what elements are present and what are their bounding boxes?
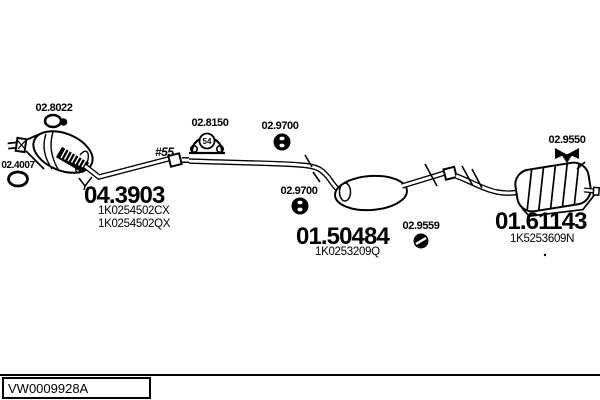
part-code-hanger-mid[interactable]: 02.9700 (276, 186, 322, 197)
centre-outlet-pipe-drawing (402, 164, 448, 186)
oem-ref-front-pipe-1: 1K0254502CX (98, 206, 170, 218)
middle-pipe-drawing (189, 155, 349, 195)
rubber-hanger-rear-icon (555, 148, 579, 163)
footer-divider (0, 374, 600, 376)
rubber-hanger-front-icon (274, 134, 291, 151)
stray-mark (544, 254, 546, 256)
part-code-hanger-round[interactable]: 02.9559 (399, 221, 443, 232)
pipe-sleeve-rear-drawing (443, 167, 456, 180)
drawing-code-label: VW0009928A (8, 381, 88, 396)
part-code-rear-silencer[interactable]: 01.61143 (495, 210, 587, 234)
pipe-diameter-note: #55 (155, 146, 174, 158)
oem-ref-rear-silencer: 1K5253609N (510, 234, 574, 246)
front-flange-drawing (16, 138, 27, 152)
rubber-hanger-mid-icon (292, 198, 309, 215)
part-code-gasket[interactable]: 02.4007 (0, 161, 36, 171)
rubber-hanger-round-icon (414, 234, 429, 249)
exhaust-diagram-canvas: 54 02.8022 02.4007 02.8150 02.9700 02.97… (0, 0, 600, 400)
part-code-mounting-kit[interactable]: 02.8150 (186, 118, 234, 129)
part-code-hanger-rear[interactable]: 02.9550 (544, 135, 590, 146)
bracket-badge-label: 54 (203, 137, 212, 146)
clamp-icon (45, 115, 67, 127)
mounting-bracket-icon: 54 (189, 134, 225, 154)
centre-silencer-drawing (334, 174, 408, 213)
drawing-code-box: VW0009928A (2, 377, 151, 399)
oem-ref-centre-silencer: 1K0253209Q (315, 247, 380, 259)
part-code-clamp[interactable]: 02.8022 (27, 103, 81, 114)
gasket-ring-icon (9, 172, 28, 186)
oem-ref-front-pipe-2: 1K0254502QX (98, 219, 170, 231)
part-code-hanger-front[interactable]: 02.9700 (257, 121, 303, 132)
